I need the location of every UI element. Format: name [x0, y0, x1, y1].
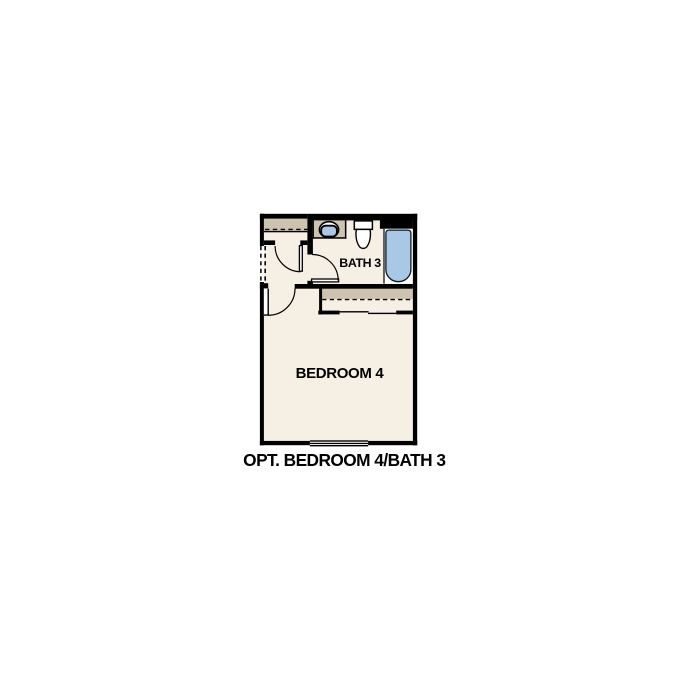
- svg-text:OPT. BEDROOM 4/BATH 3: OPT. BEDROOM 4/BATH 3: [243, 450, 445, 470]
- svg-text:BATH 3: BATH 3: [339, 256, 381, 270]
- svg-text:BEDROOM 4: BEDROOM 4: [296, 365, 385, 382]
